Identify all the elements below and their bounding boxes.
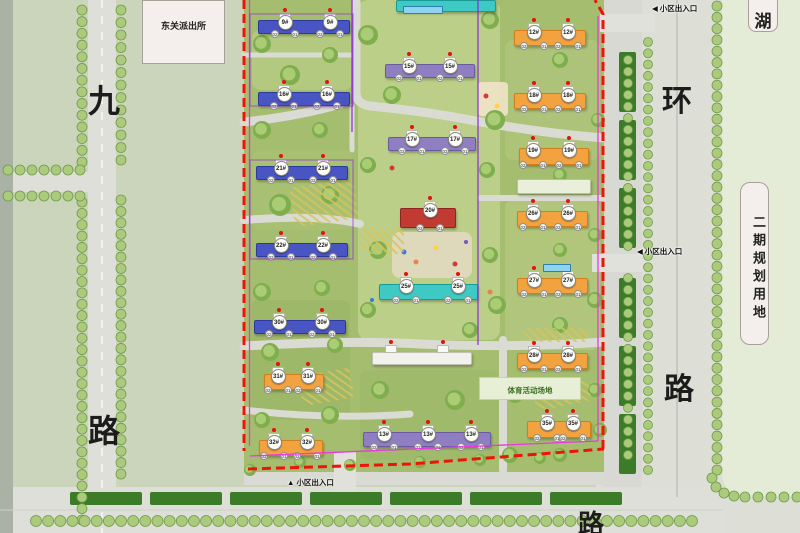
- building-badge: 19#: [562, 143, 577, 158]
- building-badge: 17#: [405, 132, 420, 147]
- unit-badge: 02: [414, 443, 422, 451]
- building-row-9: 9#02019#0201: [258, 20, 350, 34]
- building-row-20: 20#0201: [400, 208, 456, 228]
- building-row-25: 25#020125#0201: [379, 284, 478, 300]
- marker-dot: [532, 81, 536, 85]
- unit-badge: 01: [314, 386, 322, 394]
- unit-badge: 02: [395, 74, 403, 82]
- marker-dot: [277, 308, 281, 312]
- building-badge: 21#: [274, 161, 289, 176]
- marker-dot: [325, 80, 329, 84]
- building-badge: 21#: [316, 161, 331, 176]
- building-row-22: 22#020122#0201: [256, 243, 348, 257]
- unit-badge: 02: [271, 30, 279, 38]
- building-badge: 27#: [527, 273, 542, 288]
- unit-badge: 02: [555, 161, 563, 169]
- marker-dot: [410, 125, 414, 129]
- unit-badge: 02: [392, 296, 400, 304]
- unit-badge: 02: [554, 290, 562, 298]
- marker-dot: [453, 125, 457, 129]
- unit-badge: 01: [540, 105, 548, 113]
- marker-dot: [441, 340, 445, 344]
- marker-dot: [276, 362, 280, 366]
- unit-badge: 02: [313, 102, 321, 110]
- marker-dot: [272, 428, 276, 432]
- unit-badge: 01: [456, 74, 464, 82]
- building-row-17: 17#020117#0201: [388, 137, 476, 151]
- unit-badge: 02: [520, 42, 528, 50]
- unit-badge: 02: [316, 30, 324, 38]
- unit-badge: 02: [520, 290, 528, 298]
- building-row-16: 16#020116#0201: [258, 92, 350, 106]
- unit-badge: 02: [309, 253, 317, 261]
- unit-badge: 01: [540, 290, 548, 298]
- marker-dot: [426, 420, 430, 424]
- building-row-18: 18#020118#0201: [514, 93, 586, 109]
- unit-badge: 01: [333, 102, 341, 110]
- building-row-13: 13#020113#020113#0201: [363, 432, 491, 447]
- entrance-cap: [437, 345, 449, 353]
- marker-dot: [566, 199, 570, 203]
- unit-badge: 01: [464, 296, 472, 304]
- building-row-35: 35#020135#0201: [527, 421, 591, 438]
- marker-dot: [567, 136, 571, 140]
- building-badge: 13#: [421, 427, 436, 442]
- unit-badge: 02: [293, 452, 301, 460]
- building-badge: 30#: [272, 315, 287, 330]
- unit-badge: 02: [519, 161, 527, 169]
- building-badge: 13#: [464, 427, 479, 442]
- unit-badge: 02: [441, 147, 449, 155]
- building-badge: 18#: [561, 88, 576, 103]
- unit-badge: 02: [294, 386, 302, 394]
- building-badge: 28#: [561, 348, 576, 363]
- building-badge: 15#: [443, 59, 458, 74]
- building-badge: 25#: [399, 279, 414, 294]
- building-row-12: 12#020112#0201: [514, 30, 586, 46]
- building-badge: 20#: [423, 203, 438, 218]
- unit-badge: 01: [434, 443, 442, 451]
- marker-dot: [320, 308, 324, 312]
- unit-badge: 02: [520, 105, 528, 113]
- structure-row: [396, 0, 496, 12]
- building-badge: 9#: [278, 15, 293, 30]
- unit-badge: 02: [398, 147, 406, 155]
- building-badge: 16#: [320, 87, 335, 102]
- marker-dot: [532, 266, 536, 270]
- unit-badge: 02: [436, 74, 444, 82]
- building-row-26: 26#020126#0201: [517, 211, 588, 227]
- unit-badge: 01: [436, 224, 444, 232]
- unit-badge: 01: [313, 452, 321, 460]
- marker-dot: [279, 231, 283, 235]
- marker-dot: [305, 428, 309, 432]
- unit-badge: 02: [554, 223, 562, 231]
- unit-badge: 02: [264, 386, 272, 394]
- building-badge: 18#: [527, 88, 542, 103]
- building-badge: 26#: [526, 206, 541, 221]
- marker-dot: [469, 420, 473, 424]
- unit-badge: 01: [574, 223, 582, 231]
- marker-dot: [282, 80, 286, 84]
- unit-badge: 02: [457, 443, 465, 451]
- unit-badge: 01: [540, 42, 548, 50]
- building-badge: 13#: [377, 427, 392, 442]
- building-badge: 31#: [301, 369, 316, 384]
- marker-dot: [448, 52, 452, 56]
- marker-dot: [566, 266, 570, 270]
- buildings-layer: 9#02019#020116#020116#020121#020121#0201…: [0, 0, 800, 533]
- unit-badge: 01: [539, 223, 547, 231]
- building-badge: 9#: [323, 15, 338, 30]
- unit-badge: 01: [477, 443, 485, 451]
- building-badge: 26#: [561, 206, 576, 221]
- marker-dot: [283, 8, 287, 12]
- unit-badge: 01: [574, 42, 582, 50]
- building-badge: 15#: [402, 59, 417, 74]
- unit-badge: 02: [559, 434, 567, 442]
- unit-badge: 01: [579, 434, 587, 442]
- unit-badge: 01: [287, 176, 295, 184]
- marker-dot: [571, 409, 575, 413]
- building-badge: 31#: [271, 369, 286, 384]
- marker-dot: [321, 231, 325, 235]
- building-badge: 27#: [561, 273, 576, 288]
- unit-badge: 01: [575, 161, 583, 169]
- marker-dot: [532, 341, 536, 345]
- building-badge: 12#: [561, 25, 576, 40]
- building-badge: 32#: [300, 435, 315, 450]
- unit-badge: 02: [308, 330, 316, 338]
- unit-badge: 01: [574, 365, 582, 373]
- unit-badge: 01: [415, 74, 423, 82]
- unit-badge: 01: [280, 452, 288, 460]
- unit-badge: 02: [519, 223, 527, 231]
- unit-badge: 01: [287, 253, 295, 261]
- marker-dot: [328, 8, 332, 12]
- unit-badge: 01: [336, 30, 344, 38]
- marker-dot: [279, 154, 283, 158]
- marker-dot: [531, 136, 535, 140]
- unit-badge: 02: [416, 224, 424, 232]
- structure-row: [517, 179, 591, 194]
- marker-dot: [532, 18, 536, 22]
- building-badge: 32#: [267, 435, 282, 450]
- unit-badge: 01: [412, 296, 420, 304]
- unit-badge: 01: [329, 176, 337, 184]
- unit-badge: 01: [574, 290, 582, 298]
- unit-badge: 02: [270, 102, 278, 110]
- building-badge: 19#: [526, 143, 541, 158]
- building-row-31: 31#020131#0201: [264, 374, 324, 390]
- marker-dot: [428, 196, 432, 200]
- building-row-21: 21#020121#0201: [256, 166, 348, 180]
- building-badge: 35#: [540, 416, 555, 431]
- marker-dot: [382, 420, 386, 424]
- building-badge: 35#: [566, 416, 581, 431]
- marker-dot: [404, 272, 408, 276]
- marker-dot: [407, 52, 411, 56]
- building-row-19: 19#020119#0201: [519, 148, 589, 165]
- unit-badge: 01: [329, 253, 337, 261]
- unit-badge: 02: [267, 176, 275, 184]
- unit-badge: 01: [291, 30, 299, 38]
- unit-badge: 02: [265, 330, 273, 338]
- unit-badge: 02: [533, 434, 541, 442]
- building-row-28: 28#020128#0201: [517, 353, 588, 369]
- marker-dot: [389, 340, 393, 344]
- building-badge: 22#: [274, 238, 289, 253]
- unit-badge: 02: [554, 42, 562, 50]
- unit-badge: 01: [328, 330, 336, 338]
- unit-badge: 01: [539, 161, 547, 169]
- marker-dot: [531, 199, 535, 203]
- unit-badge: 01: [574, 105, 582, 113]
- unit-badge: 01: [290, 102, 298, 110]
- building-row-27: 27#020127#0201: [517, 278, 588, 294]
- building-badge: 22#: [316, 238, 331, 253]
- building-row-15: 15#020115#0201: [385, 64, 475, 78]
- unit-badge: 02: [309, 176, 317, 184]
- unit-badge: 01: [461, 147, 469, 155]
- unit-badge: 02: [267, 253, 275, 261]
- marker-dot: [321, 154, 325, 158]
- unit-badge: 02: [370, 443, 378, 451]
- unit-badge: 01: [285, 330, 293, 338]
- building-badge: 30#: [315, 315, 330, 330]
- marker-dot: [456, 272, 460, 276]
- building-row-32: 32#020132#0201: [259, 440, 323, 456]
- marker-dot: [545, 409, 549, 413]
- unit-badge: 01: [540, 365, 548, 373]
- marker-dot: [566, 81, 570, 85]
- building-badge: 12#: [527, 25, 542, 40]
- unit-badge: 02: [260, 452, 268, 460]
- building-badge: 17#: [448, 132, 463, 147]
- structure-row: [372, 352, 472, 365]
- unit-badge: 02: [520, 365, 528, 373]
- marker-dot: [306, 362, 310, 366]
- unit-badge: 01: [284, 386, 292, 394]
- marker-dot: [566, 18, 570, 22]
- building-row-30: 30#020130#0201: [254, 320, 346, 334]
- entrance-cap: [385, 345, 397, 353]
- building-badge: 25#: [451, 279, 466, 294]
- master-plan-map: 9#02019#020116#020116#020121#020121#0201…: [0, 0, 800, 533]
- marker-dot: [566, 341, 570, 345]
- unit-badge: 02: [444, 296, 452, 304]
- building-badge: 28#: [527, 348, 542, 363]
- unit-badge: 01: [418, 147, 426, 155]
- unit-badge: 02: [554, 105, 562, 113]
- unit-badge: 02: [554, 365, 562, 373]
- unit-badge: 01: [390, 443, 398, 451]
- building-badge: 16#: [277, 87, 292, 102]
